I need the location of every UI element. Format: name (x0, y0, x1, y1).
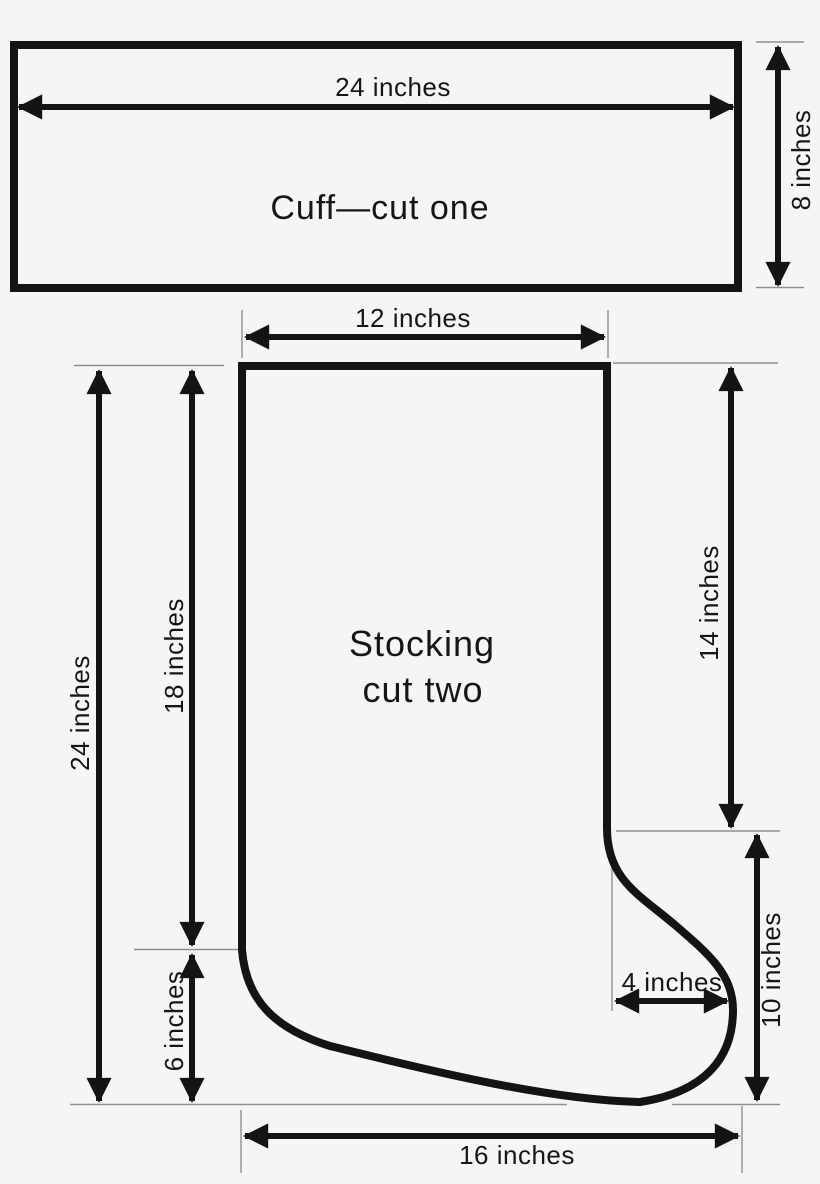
stocking-overall-height-label: 24 inches (67, 655, 93, 771)
stocking-toe-width-label: 4 inches (622, 969, 723, 995)
stocking-right-leg-label: 14 inches (696, 545, 722, 661)
cuff-width-label: 24 inches (335, 74, 451, 100)
cuff-height-label: 8 inches (788, 110, 814, 211)
stocking-foot-height-label: 10 inches (758, 912, 784, 1028)
stocking-foot-length-label: 16 inches (459, 1142, 575, 1168)
stocking-title-line2: cut two (362, 672, 483, 708)
sewing-pattern-diagram: 24 inches Cuff—cut one 8 inches 12 inche… (0, 0, 820, 1184)
cuff-title: Cuff—cut one (270, 191, 489, 225)
stocking-top-width-label: 12 inches (355, 305, 471, 331)
stocking-heel-height-label: 6 inches (161, 971, 187, 1072)
stocking-leg-height-label: 18 inches (161, 598, 187, 714)
stocking-title-line1: Stocking (349, 626, 495, 662)
